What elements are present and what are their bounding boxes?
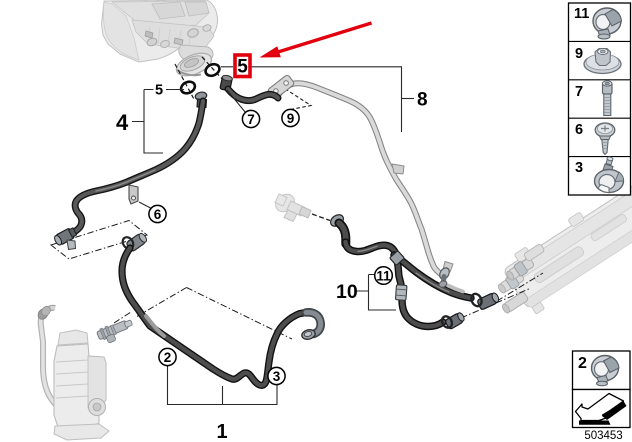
svg-text:7: 7 bbox=[575, 84, 583, 100]
svg-text:1: 1 bbox=[217, 421, 228, 442]
svg-text:10: 10 bbox=[336, 281, 358, 303]
svg-text:2: 2 bbox=[578, 355, 587, 372]
svg-text:9: 9 bbox=[575, 46, 583, 62]
svg-text:7: 7 bbox=[247, 112, 255, 127]
svg-text:2: 2 bbox=[164, 350, 172, 365]
svg-text:9: 9 bbox=[287, 111, 295, 126]
svg-text:3: 3 bbox=[575, 160, 583, 176]
svg-text:3: 3 bbox=[273, 369, 281, 384]
svg-text:6: 6 bbox=[154, 207, 162, 222]
svg-text:6: 6 bbox=[575, 122, 583, 138]
svg-text:8: 8 bbox=[417, 90, 428, 111]
svg-text:5: 5 bbox=[237, 57, 248, 78]
svg-text:503453: 503453 bbox=[584, 430, 622, 442]
svg-text:11: 11 bbox=[574, 6, 589, 22]
svg-text:4: 4 bbox=[116, 110, 129, 135]
svg-text:11: 11 bbox=[376, 268, 391, 283]
svg-text:5: 5 bbox=[155, 83, 163, 99]
